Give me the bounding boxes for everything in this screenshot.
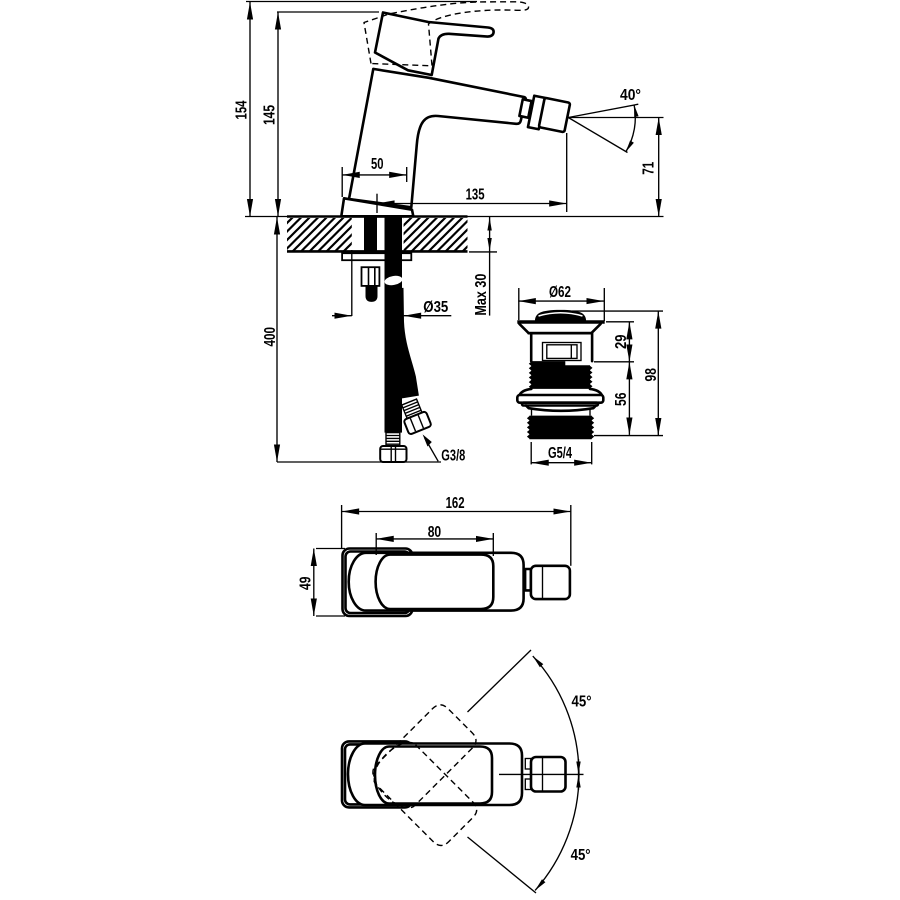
svg-text:400: 400: [262, 327, 279, 347]
svg-text:G3/8: G3/8: [441, 448, 465, 465]
svg-text:50: 50: [371, 156, 384, 173]
svg-text:Max 30: Max 30: [473, 274, 490, 316]
svg-text:Ø62: Ø62: [549, 284, 571, 301]
svg-text:40°: 40°: [620, 87, 641, 104]
svg-text:G5/4: G5/4: [548, 445, 572, 462]
svg-text:49: 49: [298, 576, 315, 590]
svg-text:45°: 45°: [572, 694, 592, 711]
svg-text:29: 29: [613, 334, 630, 349]
svg-text:145: 145: [262, 105, 279, 125]
svg-text:71: 71: [641, 161, 658, 174]
svg-text:56: 56: [613, 392, 630, 406]
svg-text:98: 98: [643, 368, 660, 382]
svg-text:154: 154: [234, 100, 251, 119]
svg-text:162: 162: [446, 495, 465, 512]
svg-text:Ø35: Ø35: [423, 299, 448, 316]
svg-text:80: 80: [428, 524, 442, 541]
svg-text:45°: 45°: [571, 847, 591, 864]
svg-text:135: 135: [466, 186, 485, 203]
